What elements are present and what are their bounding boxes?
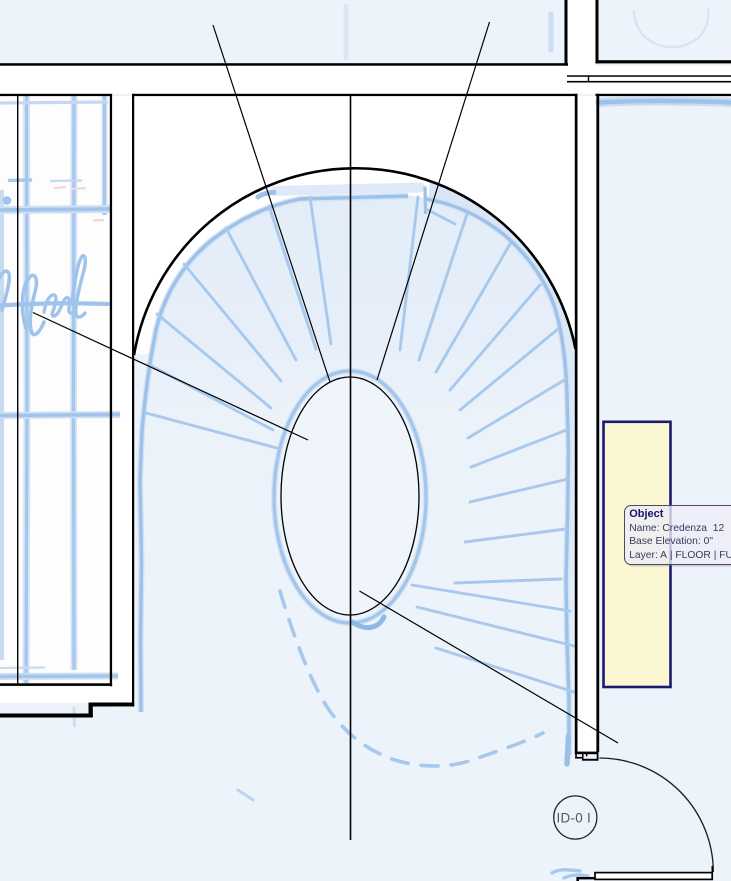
svg-text:ID-0 I: ID-0 I bbox=[557, 810, 592, 825]
